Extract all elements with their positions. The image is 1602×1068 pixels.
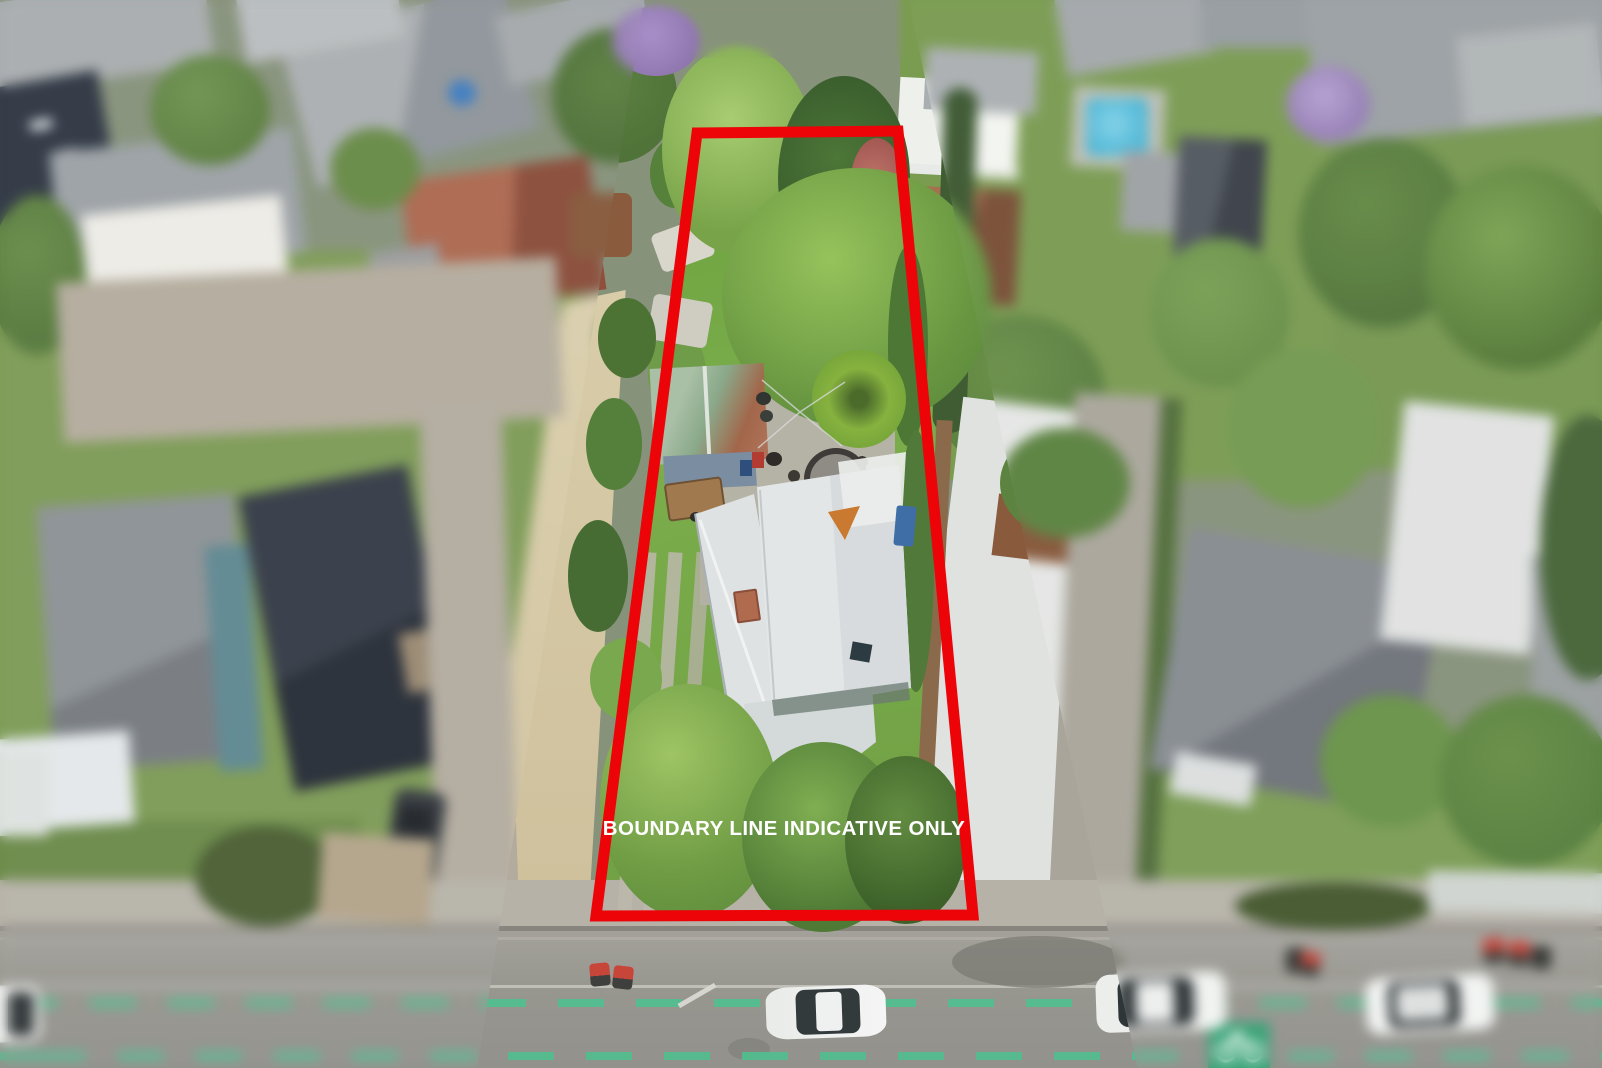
parked-sedan-roof <box>815 992 842 1032</box>
tan-fence-bottomleft <box>317 832 435 926</box>
aerial-photo: BOUNDARY LINE INDICATIVE ONLY <box>0 0 1602 1068</box>
swimming-pool <box>1086 98 1148 156</box>
outdoor-chair-1 <box>788 470 800 482</box>
white-roof-farright <box>1380 401 1554 655</box>
red-bin-2 <box>612 965 634 990</box>
tyre-stack-1 <box>756 392 771 405</box>
blue-tarp <box>893 505 916 547</box>
red-crate <box>752 452 764 468</box>
trailer-wheel <box>690 512 702 522</box>
bike-lane-dashes-bottom <box>0 1052 1602 1060</box>
outdoor-chair-2 <box>856 456 868 468</box>
dark-car-windshield <box>396 804 434 838</box>
hedge-along-road-right <box>1235 882 1435 930</box>
hedge-bottomleft <box>195 826 337 926</box>
bush-left-of-boundary-3 <box>568 520 628 632</box>
tree-farright-1 <box>1320 695 1460 827</box>
bbq <box>766 452 782 466</box>
jacaranda-tree-top <box>612 6 700 76</box>
tree-right-3 <box>1228 348 1378 508</box>
tree-topleft-3 <box>330 128 420 210</box>
white-house-roof <box>923 47 1038 115</box>
bicycle-icon <box>1208 1022 1270 1068</box>
bush-left-of-boundary-1 <box>598 298 656 378</box>
white-roof-fartopright <box>1456 23 1602 127</box>
jacaranda-tree-right <box>1286 66 1370 142</box>
red-bin-3 <box>1298 951 1321 978</box>
tyre-stack-2 <box>760 410 773 422</box>
blue-trampoline <box>448 80 476 106</box>
roof-topright-b <box>1200 0 1320 48</box>
hedge-inside-right-2 <box>898 430 934 692</box>
parked-wagon-roofbox <box>1395 985 1449 1022</box>
dark-bin-2 <box>1531 946 1551 969</box>
bike-lane-symbol-box <box>1208 1022 1270 1068</box>
red-bin-1 <box>589 962 611 987</box>
tree-farright-2 <box>1440 695 1602 867</box>
channel-line <box>0 937 1602 940</box>
brown-bench <box>570 193 632 257</box>
tree-topleft-1 <box>150 55 270 165</box>
red-bin-5 <box>1507 940 1531 967</box>
boundary-disclaimer-label: BOUNDARY LINE INDICATIVE ONLY <box>598 817 970 841</box>
palm-tree <box>812 350 906 448</box>
parked-suv-roof <box>1135 981 1174 1022</box>
firepit <box>772 528 788 541</box>
roof-vent <box>850 641 873 662</box>
small-house-bottomleft <box>0 752 48 836</box>
blue-bin-garage <box>740 460 752 476</box>
red-bin-4 <box>1482 937 1506 964</box>
parked-car-partial-left-glass <box>8 992 34 1036</box>
white-fence-along-road <box>1428 870 1602 913</box>
hedge-right-mid <box>1000 428 1130 538</box>
bush-left-of-boundary-2 <box>586 398 642 490</box>
chimney <box>733 588 761 623</box>
willow-tree-right <box>1425 165 1602 370</box>
